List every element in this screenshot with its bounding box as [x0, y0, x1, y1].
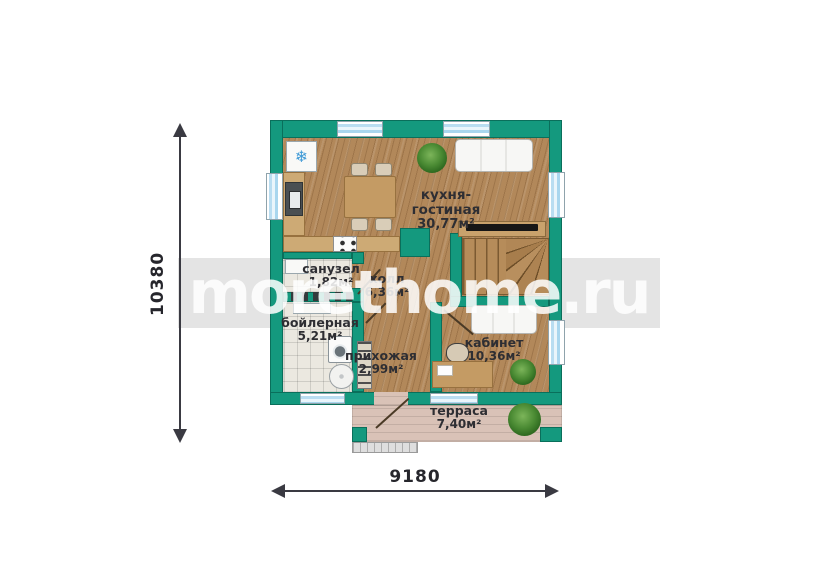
horizontal-dimension-label: 9180	[375, 467, 455, 487]
floor-plan-canvas: 10380 9180	[0, 0, 829, 577]
horizontal-dimension-line	[284, 490, 546, 492]
arrow-right-icon	[545, 484, 559, 498]
vertical-dimension-label: 10380	[148, 256, 168, 316]
arrow-up-icon	[173, 123, 187, 137]
arrow-down-icon	[173, 429, 187, 443]
arrow-left-icon	[271, 484, 285, 498]
watermark-text: morethome.ru	[178, 258, 660, 328]
